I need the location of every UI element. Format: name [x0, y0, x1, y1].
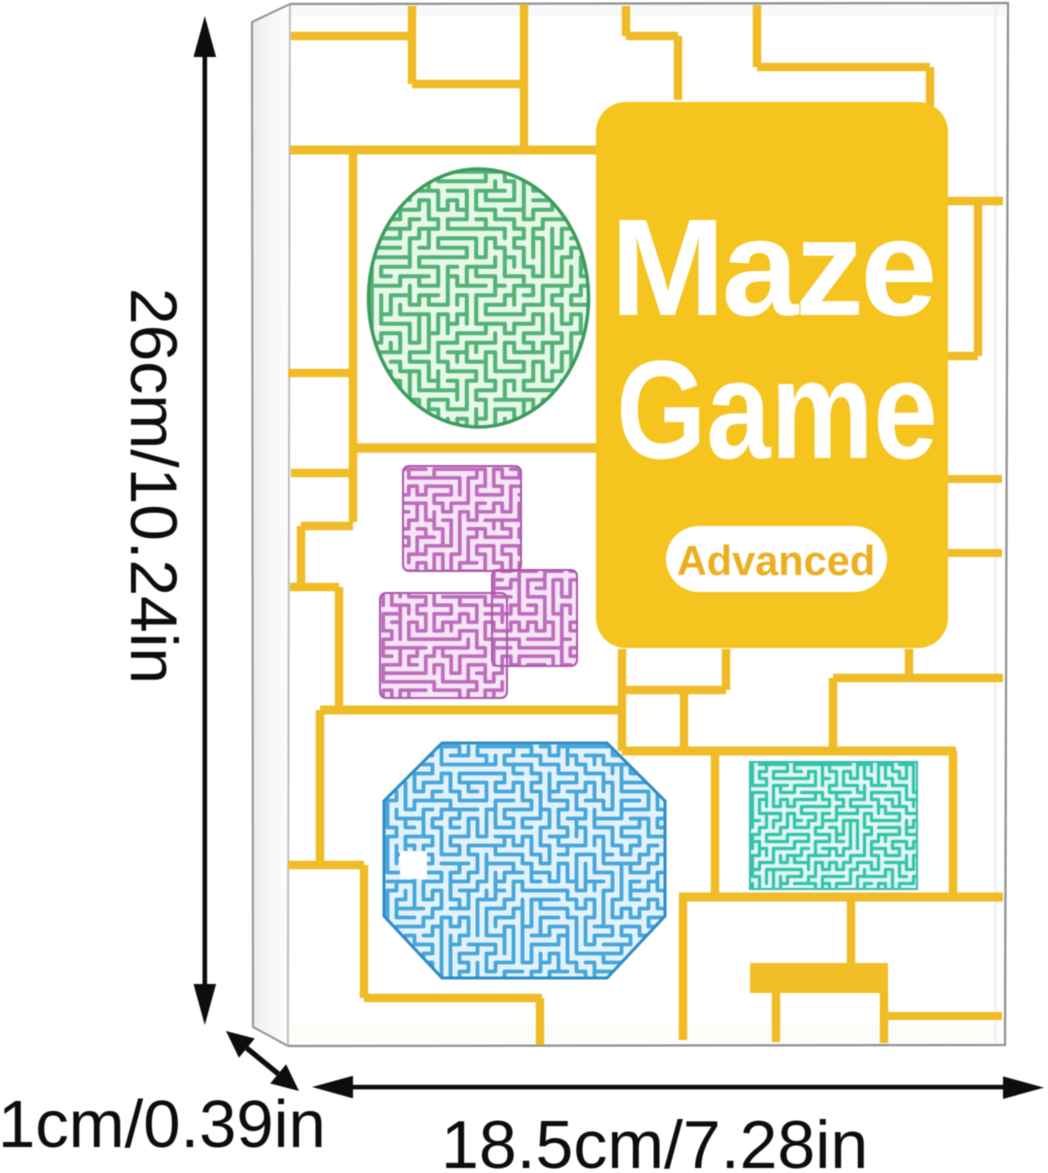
- svg-text:Maze: Maze: [610, 191, 933, 345]
- svg-text:Game: Game: [616, 333, 937, 489]
- svg-text:1cm/0.39in: 1cm/0.39in: [0, 1087, 326, 1162]
- svg-text:Advanced: Advanced: [677, 537, 875, 584]
- svg-text:18.5cm/7.28in: 18.5cm/7.28in: [441, 1107, 868, 1173]
- svg-text:26cm/10.24in: 26cm/10.24in: [117, 288, 191, 684]
